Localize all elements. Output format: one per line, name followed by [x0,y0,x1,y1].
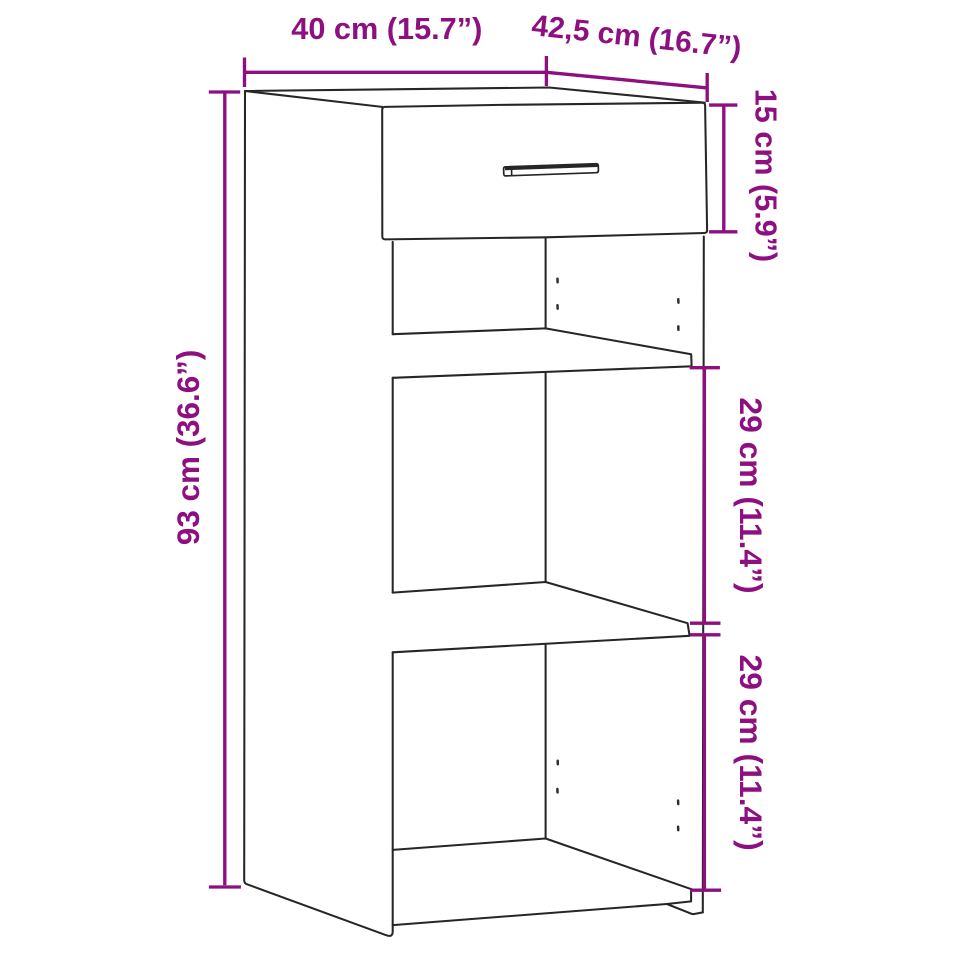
svg-text:93 cm (36.6”): 93 cm (36.6”) [171,350,206,545]
svg-text:29 cm (11.4”): 29 cm (11.4”) [733,654,769,850]
svg-text:29 cm (11.4”): 29 cm (11.4”) [733,397,769,593]
svg-text:40 cm (15.7”): 40 cm (15.7”) [291,11,482,46]
svg-text:15 cm (5.9”): 15 cm (5.9”) [749,89,783,262]
